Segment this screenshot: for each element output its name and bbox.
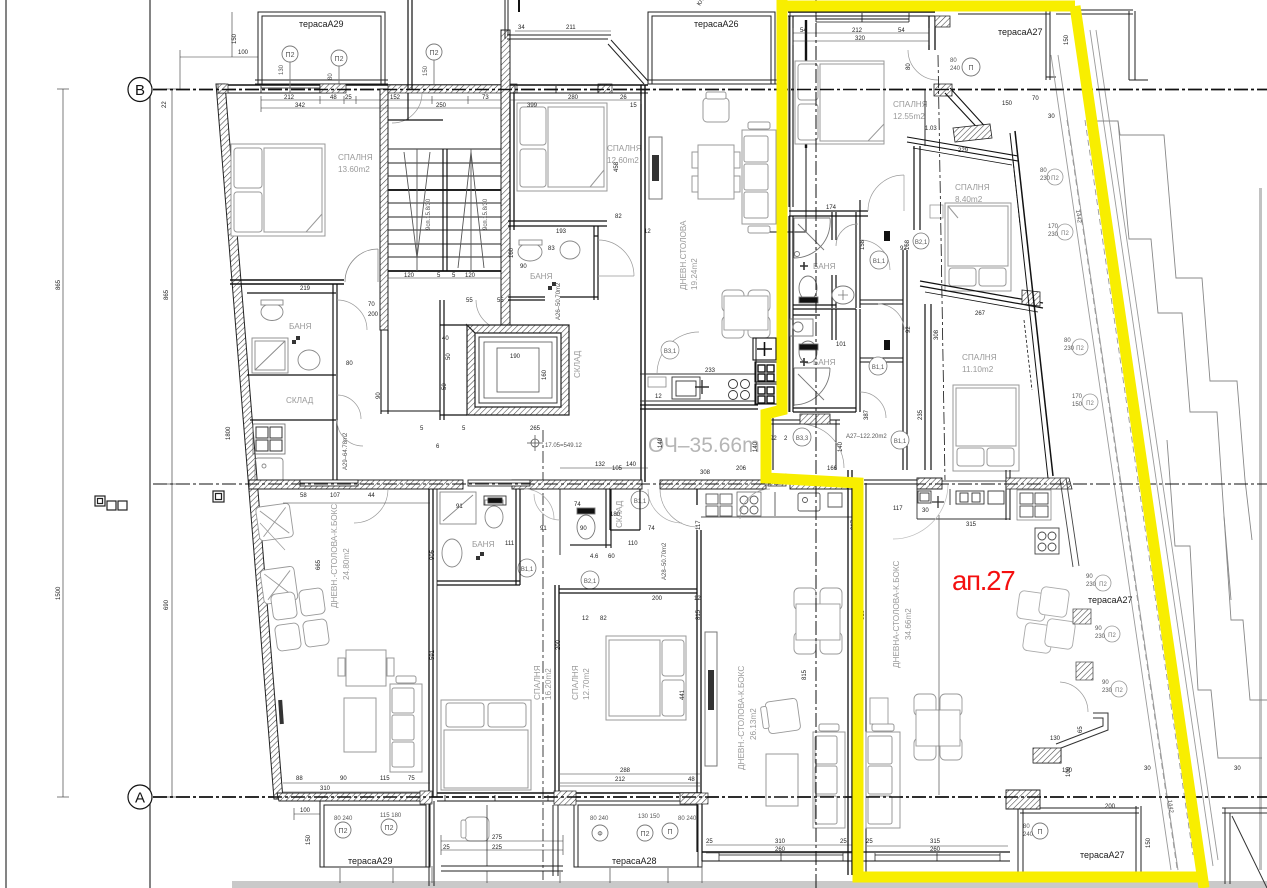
- svg-text:158: 158: [860, 239, 866, 250]
- svg-text:107: 107: [330, 493, 341, 499]
- svg-text:865: 865: [164, 289, 170, 300]
- svg-text:П: П: [968, 65, 973, 72]
- svg-text:665: 665: [316, 559, 322, 570]
- svg-text:26: 26: [620, 95, 627, 101]
- svg-text:82: 82: [600, 616, 607, 622]
- svg-text:терасаА26: терасаА26: [694, 19, 739, 29]
- svg-text:П2: П2: [385, 825, 394, 832]
- svg-text:25: 25: [840, 839, 847, 845]
- svg-text:206: 206: [736, 466, 747, 472]
- svg-text:150: 150: [1002, 101, 1013, 107]
- svg-text:48: 48: [688, 777, 695, 783]
- svg-text:120: 120: [465, 273, 476, 279]
- svg-text:СПАЛНЯ: СПАЛНЯ: [893, 100, 928, 109]
- svg-text:308: 308: [700, 470, 711, 476]
- svg-text:25: 25: [866, 839, 873, 845]
- svg-text:111: 111: [505, 541, 515, 547]
- svg-text:150: 150: [1146, 837, 1152, 848]
- svg-text:75: 75: [408, 776, 415, 782]
- svg-text:80: 80: [328, 73, 334, 80]
- svg-text:160: 160: [509, 247, 515, 258]
- svg-text:170: 170: [1048, 224, 1059, 230]
- svg-text:230: 230: [1095, 634, 1106, 640]
- svg-text:П2: П2: [339, 828, 348, 835]
- svg-text:235: 235: [918, 409, 924, 420]
- svg-text:225: 225: [492, 845, 503, 851]
- svg-text:26.13m2: 26.13m2: [749, 708, 758, 740]
- svg-text:12.60m2: 12.60m2: [607, 156, 639, 165]
- svg-text:140: 140: [626, 462, 637, 468]
- svg-text:12: 12: [582, 616, 589, 622]
- svg-text:80: 80: [950, 58, 957, 64]
- svg-text:СКЛАД: СКЛАД: [286, 396, 314, 405]
- svg-text:315: 315: [966, 522, 977, 528]
- svg-text:91: 91: [456, 504, 463, 510]
- svg-text:90: 90: [580, 526, 587, 532]
- svg-text:117: 117: [893, 506, 903, 512]
- svg-text:74: 74: [574, 502, 581, 508]
- svg-text:865: 865: [56, 279, 62, 290]
- svg-text:9сп.15.8/30: 9сп.15.8/30: [483, 198, 489, 230]
- svg-text:П2: П2: [1099, 582, 1107, 588]
- svg-text:В1,1: В1,1: [873, 259, 886, 265]
- svg-text:260: 260: [775, 847, 786, 853]
- svg-text:8.40m2: 8.40m2: [955, 195, 983, 204]
- svg-text:СПАЛНЯ: СПАЛНЯ: [955, 183, 990, 192]
- svg-text:СПАЛНЯ: СПАЛНЯ: [338, 153, 373, 162]
- svg-text:34.66m2: 34.66m2: [904, 608, 913, 640]
- svg-text:22: 22: [162, 101, 168, 108]
- svg-text:82: 82: [615, 214, 622, 220]
- svg-text:СКЛАД: СКЛАД: [573, 350, 582, 378]
- svg-text:25: 25: [345, 95, 352, 101]
- svg-text:250: 250: [436, 103, 447, 109]
- svg-text:П2: П2: [1115, 688, 1123, 694]
- svg-text:ДНЕВНА-СТОЛОВА-К.БОКС: ДНЕВНА-СТОЛОВА-К.БОКС: [892, 560, 901, 668]
- svg-text:193: 193: [556, 229, 567, 235]
- svg-text:А27–122.20m2: А27–122.20m2: [846, 434, 887, 440]
- svg-text:В1,1: В1,1: [894, 439, 907, 445]
- svg-text:В3,1: В3,1: [664, 349, 677, 355]
- svg-text:315: 315: [930, 839, 941, 845]
- svg-text:70: 70: [368, 302, 375, 308]
- svg-text:815: 815: [802, 669, 808, 680]
- svg-text:65: 65: [1078, 726, 1084, 733]
- svg-text:260: 260: [930, 847, 941, 853]
- svg-text:441: 441: [680, 689, 686, 700]
- svg-text:БАНЯ: БАНЯ: [530, 272, 553, 281]
- svg-text:275: 275: [492, 835, 503, 841]
- svg-text:115: 115: [380, 776, 390, 782]
- svg-text:230: 230: [1102, 688, 1113, 694]
- svg-text:В2,1: В2,1: [584, 579, 597, 585]
- svg-text:130: 130: [279, 64, 285, 75]
- svg-text:150: 150: [1072, 402, 1083, 408]
- svg-text:200: 200: [652, 596, 663, 602]
- svg-text:265: 265: [530, 426, 541, 432]
- svg-text:30: 30: [1234, 766, 1241, 772]
- svg-text:310: 310: [320, 786, 331, 792]
- svg-text:88: 88: [296, 776, 303, 782]
- svg-text:92: 92: [906, 326, 912, 333]
- svg-text:80: 80: [1040, 168, 1047, 174]
- svg-text:90: 90: [1095, 626, 1102, 632]
- svg-text:150: 150: [423, 65, 429, 76]
- svg-text:24.80m2: 24.80m2: [342, 548, 351, 580]
- svg-text:П: П: [667, 829, 672, 836]
- svg-text:40: 40: [442, 336, 449, 342]
- svg-text:200: 200: [1105, 804, 1116, 810]
- svg-text:4.6: 4.6: [590, 554, 599, 560]
- svg-text:200: 200: [368, 312, 379, 318]
- svg-text:17.05=549.12: 17.05=549.12: [545, 443, 583, 449]
- svg-text:73: 73: [482, 95, 489, 101]
- svg-text:50: 50: [442, 383, 448, 390]
- svg-text:А29–64.78m2: А29–64.78m2: [343, 432, 349, 470]
- svg-text:12: 12: [694, 596, 701, 602]
- svg-text:310: 310: [775, 839, 786, 845]
- svg-text:267: 267: [975, 311, 986, 317]
- svg-text:СПАЛНЯ: СПАЛНЯ: [571, 665, 580, 700]
- svg-text:В2,1: В2,1: [915, 240, 928, 246]
- svg-text:12.70m2: 12.70m2: [582, 668, 591, 700]
- svg-text:П2: П2: [430, 50, 439, 57]
- svg-text:В1,1: В1,1: [872, 365, 885, 371]
- svg-text:А26–50.70m2: А26–50.70m2: [556, 282, 562, 320]
- svg-text:80 240: 80 240: [590, 816, 609, 822]
- svg-text:160: 160: [542, 369, 548, 380]
- svg-text:54: 54: [800, 28, 807, 34]
- svg-text:230: 230: [1086, 582, 1097, 588]
- svg-text:12: 12: [644, 229, 651, 235]
- svg-text:399: 399: [527, 103, 538, 109]
- svg-text:П2: П2: [1086, 401, 1094, 407]
- svg-text:152: 152: [390, 95, 401, 101]
- svg-text:211: 211: [566, 25, 576, 31]
- svg-text:110: 110: [628, 541, 638, 547]
- svg-text:54: 54: [898, 28, 905, 34]
- svg-text:230: 230: [1064, 346, 1075, 352]
- svg-text:15: 15: [630, 103, 637, 109]
- svg-text:50: 50: [446, 353, 452, 360]
- svg-text:815: 815: [696, 609, 702, 620]
- svg-text:11.10m2: 11.10m2: [962, 365, 994, 374]
- svg-text:терасаА28: терасаА28: [612, 856, 657, 866]
- svg-text:А28–50.70m2: А28–50.70m2: [662, 542, 668, 580]
- svg-text:B: B: [135, 82, 145, 99]
- svg-text:1800: 1800: [226, 426, 232, 440]
- svg-text:90: 90: [376, 392, 382, 399]
- svg-text:П2: П2: [286, 52, 295, 59]
- svg-text:90: 90: [340, 776, 347, 782]
- svg-text:100: 100: [300, 808, 311, 814]
- svg-text:БАНЯ: БАНЯ: [472, 540, 495, 549]
- svg-text:58: 58: [300, 493, 307, 499]
- svg-text:В3,3: В3,3: [796, 436, 809, 442]
- svg-text:83: 83: [548, 246, 555, 252]
- svg-text:80: 80: [906, 63, 912, 70]
- svg-text:34: 34: [518, 25, 525, 31]
- svg-text:ДНЕВН.-СТОЛОВА-К.БОКС: ДНЕВН.-СТОЛОВА-К.БОКС: [330, 504, 339, 608]
- svg-text:СПАЛНЯ: СПАЛНЯ: [533, 665, 542, 700]
- svg-text:120: 120: [404, 273, 415, 279]
- svg-text:терасаА27: терасаА27: [1088, 595, 1133, 605]
- svg-text:387: 387: [864, 409, 870, 420]
- svg-text:25: 25: [706, 839, 713, 845]
- svg-text:591: 591: [430, 649, 436, 660]
- svg-text:130 150: 130 150: [638, 814, 660, 820]
- svg-text:1500: 1500: [56, 586, 62, 600]
- svg-text:П2: П2: [1108, 633, 1116, 639]
- svg-text:342: 342: [295, 103, 306, 109]
- svg-text:90: 90: [520, 264, 527, 270]
- svg-text:115 180: 115 180: [380, 813, 402, 819]
- svg-text:458: 458: [614, 161, 620, 172]
- svg-text:150: 150: [306, 834, 312, 845]
- svg-text:80 240: 80 240: [334, 816, 353, 822]
- svg-text:25: 25: [443, 845, 450, 851]
- svg-text:230: 230: [1040, 176, 1051, 182]
- svg-text:30: 30: [1144, 766, 1151, 772]
- svg-text:44: 44: [368, 493, 375, 499]
- svg-text:212: 212: [852, 28, 863, 34]
- svg-text:100: 100: [1066, 766, 1072, 777]
- svg-text:180: 180: [610, 512, 621, 518]
- svg-text:140: 140: [753, 441, 759, 452]
- svg-text:212: 212: [615, 777, 626, 783]
- svg-text:140: 140: [658, 437, 664, 448]
- svg-text:П2: П2: [335, 56, 344, 63]
- svg-text:92: 92: [900, 246, 907, 252]
- svg-text:терасаА29: терасаА29: [348, 856, 393, 866]
- svg-text:терасаА29: терасаА29: [299, 19, 344, 29]
- svg-text:16.20m2: 16.20m2: [544, 668, 553, 700]
- svg-text:П: П: [1037, 829, 1042, 836]
- svg-text:П2: П2: [641, 831, 650, 838]
- svg-text:233: 233: [705, 368, 716, 374]
- svg-text:105: 105: [612, 466, 623, 472]
- svg-text:ДНЕВН.-СТОЛОВА-К.БОКС: ДНЕВН.-СТОЛОВА-К.БОКС: [737, 666, 746, 770]
- svg-text:90: 90: [1086, 574, 1093, 580]
- svg-text:74: 74: [648, 526, 655, 532]
- svg-text:288: 288: [620, 768, 631, 774]
- svg-text:240: 240: [1023, 832, 1034, 838]
- svg-text:80: 80: [346, 361, 353, 367]
- svg-text:СПАЛНЯ: СПАЛНЯ: [607, 144, 642, 153]
- svg-text:150: 150: [1064, 34, 1070, 45]
- svg-text:13.60m2: 13.60m2: [338, 165, 370, 174]
- svg-text:80: 80: [1064, 338, 1071, 344]
- svg-text:280: 280: [568, 95, 579, 101]
- svg-text:905: 905: [430, 549, 436, 560]
- svg-text:170: 170: [1072, 394, 1083, 400]
- svg-text:П2: П2: [1051, 176, 1059, 182]
- svg-text:101: 101: [836, 342, 847, 348]
- svg-text:55: 55: [497, 298, 504, 304]
- svg-text:219: 219: [300, 286, 311, 292]
- svg-text:СПАЛНЯ: СПАЛНЯ: [962, 353, 997, 362]
- svg-text:132: 132: [595, 462, 606, 468]
- svg-text:55: 55: [466, 298, 473, 304]
- svg-text:174: 174: [826, 205, 837, 211]
- svg-text:320: 320: [855, 36, 866, 42]
- svg-text:терасаА27: терасаА27: [998, 27, 1043, 37]
- svg-text:1.03: 1.03: [925, 126, 937, 132]
- svg-text:60: 60: [608, 554, 615, 560]
- svg-text:П2: П2: [1061, 231, 1069, 237]
- svg-text:80 240: 80 240: [678, 816, 697, 822]
- svg-text:12: 12: [655, 394, 662, 400]
- svg-text:30: 30: [1048, 114, 1055, 120]
- svg-text:100: 100: [238, 50, 249, 56]
- svg-text:230: 230: [1048, 232, 1059, 238]
- svg-text:117: 117: [696, 520, 702, 530]
- svg-text:690: 690: [164, 599, 170, 610]
- svg-text:212: 212: [284, 95, 295, 101]
- svg-text:200: 200: [556, 639, 562, 650]
- svg-text:ДНЕВН.СТОЛОВА: ДНЕВН.СТОЛОВА: [679, 220, 688, 290]
- svg-text:БАНЯ: БАНЯ: [289, 322, 312, 331]
- svg-text:терасаА27: терасаА27: [1080, 850, 1125, 860]
- svg-text:A: A: [135, 790, 145, 807]
- svg-text:Ф: Ф: [597, 831, 602, 838]
- svg-text:19.24m2: 19.24m2: [690, 258, 699, 290]
- svg-text:В1,1: В1,1: [521, 567, 534, 573]
- svg-text:90: 90: [1102, 680, 1109, 686]
- svg-text:240: 240: [950, 66, 961, 72]
- svg-text:150: 150: [232, 33, 238, 44]
- svg-text:190: 190: [510, 354, 521, 360]
- svg-text:9сп.15.8/30: 9сп.15.8/30: [426, 198, 432, 230]
- svg-text:30: 30: [922, 508, 929, 514]
- svg-text:12.55m2: 12.55m2: [893, 112, 925, 121]
- svg-text:48: 48: [330, 95, 337, 101]
- svg-text:130: 130: [1050, 736, 1061, 742]
- svg-text:308: 308: [934, 329, 940, 340]
- svg-text:91: 91: [540, 526, 547, 532]
- svg-text:70: 70: [1032, 96, 1039, 102]
- svg-text:П2: П2: [1076, 346, 1084, 352]
- svg-text:80: 80: [1023, 824, 1030, 830]
- svg-text:ап.27: ап.27: [952, 565, 1014, 596]
